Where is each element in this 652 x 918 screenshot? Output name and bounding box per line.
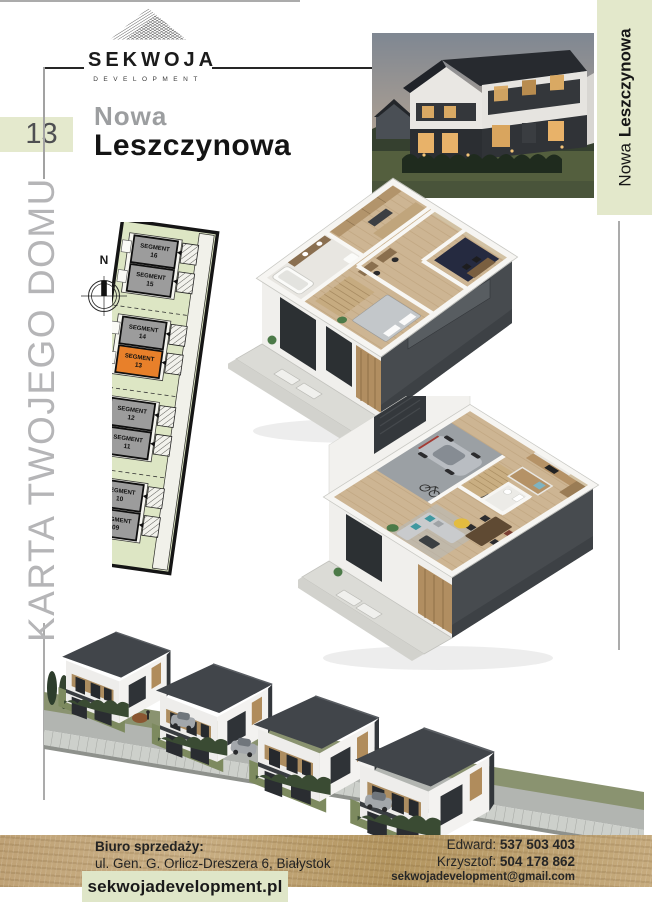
svg-text:10: 10 <box>116 495 125 503</box>
office-label: Biuro sprzedaży: <box>95 838 331 855</box>
svg-text:09: 09 <box>112 524 120 532</box>
header-rule-left <box>43 67 90 69</box>
sales-office-info: Biuro sprzedaży: ul. Gen. G. Orlicz-Dres… <box>95 838 331 872</box>
red-shrub <box>132 713 148 723</box>
bottom-left-bracket-horizontal <box>0 0 300 2</box>
svg-text:N: N <box>100 253 109 267</box>
ground-floor-plan <box>298 396 642 706</box>
driveway <box>180 243 199 265</box>
driveway <box>146 487 165 509</box>
office-address: ul. Gen. G. Orlicz-Dreszera 6, Białystok <box>95 855 331 872</box>
compass-icon: N <box>72 250 136 328</box>
svg-text:12: 12 <box>127 414 136 422</box>
card-number: 13 <box>15 118 57 151</box>
website-box: sekwojadevelopment.pl <box>82 871 288 902</box>
svg-text:11: 11 <box>123 443 131 451</box>
contact-info: Edward: 537 503 403 Krzysztof: 504 178 8… <box>391 837 575 883</box>
project-title: Nowa Leszczynowa <box>94 103 291 162</box>
driveway <box>153 434 172 456</box>
brand-name: SEKWOJA <box>88 49 208 72</box>
driveway <box>169 324 188 346</box>
driveway <box>176 272 195 294</box>
contact-krzysztof-phone: 504 178 862 <box>500 854 575 869</box>
svg-text:16: 16 <box>150 252 159 260</box>
driveway <box>157 406 176 428</box>
contact-edward-phone: 537 503 403 <box>500 837 575 852</box>
tree-hatch-icon <box>110 8 186 41</box>
header-rule-right <box>197 67 372 69</box>
flyer-page: 13 SEKWOJA DEVELOPMENT Nowa Leszczynowa … <box>0 0 652 918</box>
strip-name: Leszczynowa <box>615 28 634 137</box>
potted-plant <box>268 336 277 345</box>
project-title-prefix: Nowa <box>94 103 291 130</box>
brand-logo: SEKWOJA DEVELOPMENT <box>84 6 212 83</box>
left-rail-line <box>43 67 45 179</box>
strip-project-label: NowaLeszczynowa <box>597 1 652 215</box>
contact-krzysztof: Krzysztof: 504 178 862 <box>391 854 575 871</box>
contact-edward: Edward: 537 503 403 <box>391 837 575 854</box>
potted-plant <box>334 568 343 577</box>
svg-text:13: 13 <box>134 362 143 370</box>
website-url: sekwojadevelopment.pl <box>87 877 282 897</box>
project-title-name: Leszczynowa <box>94 130 291 162</box>
brand-subtitle: DEVELOPMENT <box>88 76 208 83</box>
strip-prefix: Nowa <box>615 143 634 186</box>
driveway <box>142 515 161 537</box>
contact-email: sekwojadevelopment@gmail.com <box>391 871 575 883</box>
side-caption: KARTA TWOJEGO DOMU <box>21 192 63 642</box>
neighbor-house <box>587 73 594 145</box>
card-number-badge: 13 <box>0 117 73 152</box>
svg-text:14: 14 <box>138 333 147 341</box>
driveway <box>165 353 184 375</box>
svg-text:15: 15 <box>146 280 155 288</box>
